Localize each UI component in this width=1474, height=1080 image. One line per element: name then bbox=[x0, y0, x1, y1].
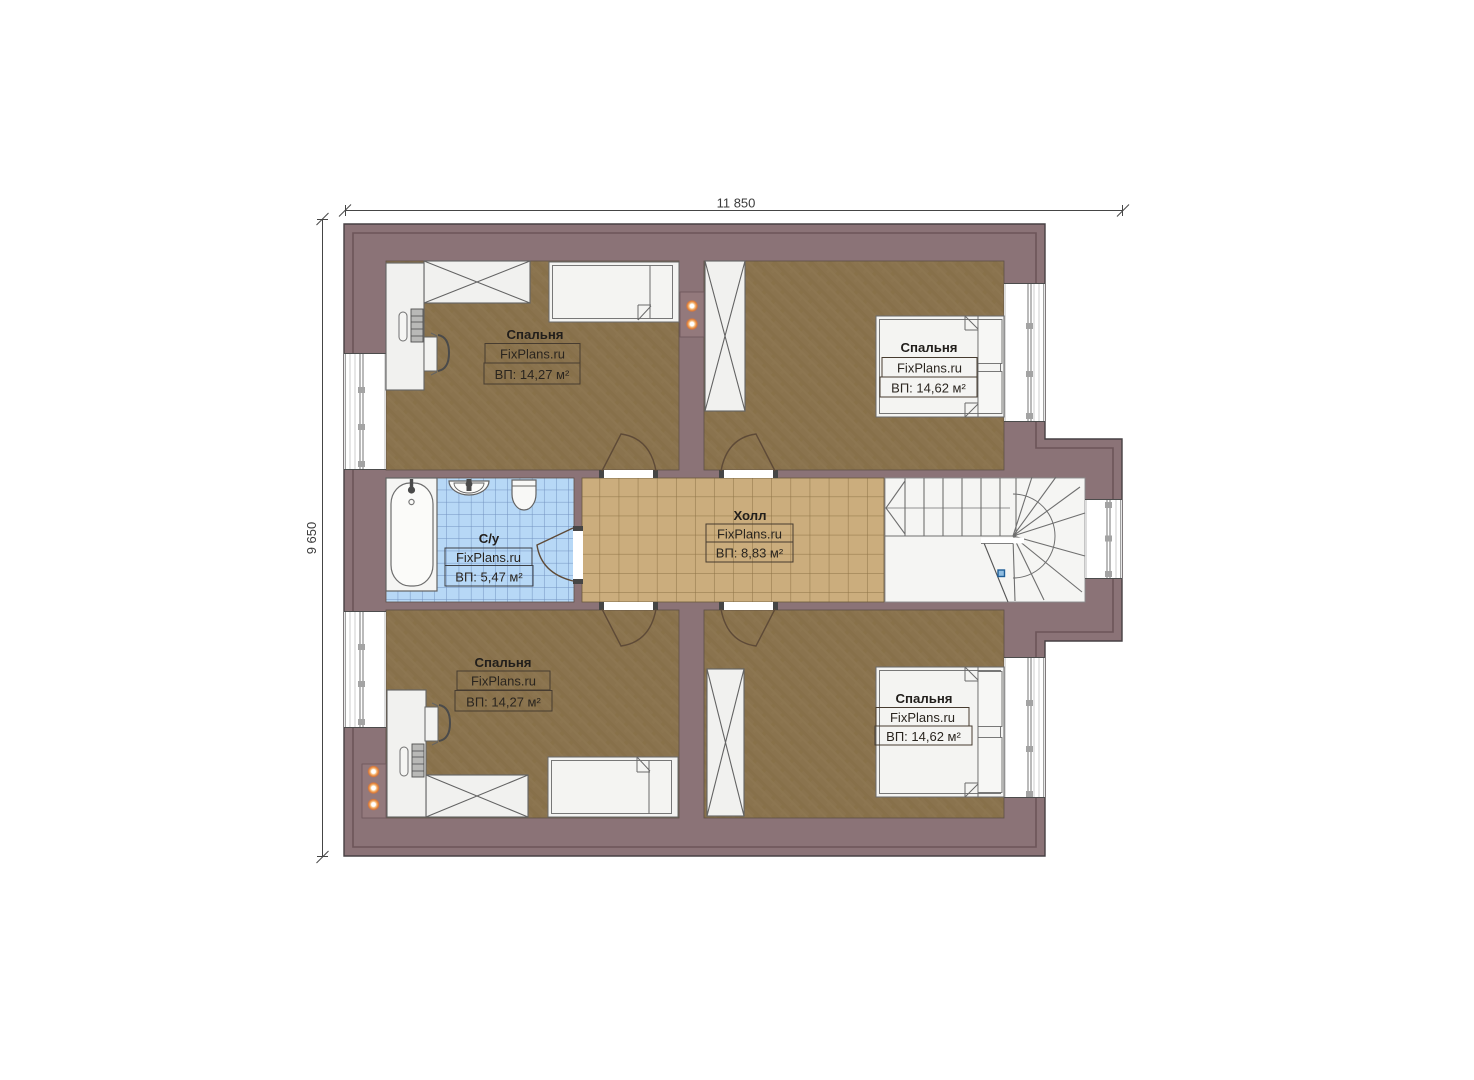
svg-text:Спальня: Спальня bbox=[901, 340, 958, 355]
svg-text:Спальня: Спальня bbox=[896, 691, 953, 706]
svg-text:FixPlans.ru: FixPlans.ru bbox=[456, 550, 521, 565]
svg-text:ВП: 14,62 м²: ВП: 14,62 м² bbox=[891, 381, 966, 396]
svg-text:Холл: Холл bbox=[733, 508, 766, 523]
svg-text:ВП: 8,83 м²: ВП: 8,83 м² bbox=[716, 546, 784, 561]
svg-text:FixPlans.ru: FixPlans.ru bbox=[717, 527, 782, 542]
svg-text:Спальня: Спальня bbox=[475, 655, 532, 670]
svg-text:ВП: 14,27 м²: ВП: 14,27 м² bbox=[466, 695, 541, 710]
svg-text:ВП: 14,62 м²: ВП: 14,62 м² bbox=[886, 729, 961, 744]
svg-text:FixPlans.ru: FixPlans.ru bbox=[897, 361, 962, 376]
svg-text:FixPlans.ru: FixPlans.ru bbox=[500, 347, 565, 362]
svg-text:FixPlans.ru: FixPlans.ru bbox=[471, 674, 536, 689]
svg-text:С/у: С/у bbox=[479, 531, 500, 546]
svg-text:Спальня: Спальня bbox=[507, 327, 564, 342]
svg-text:11 850: 11 850 bbox=[717, 196, 756, 211]
svg-text:9 650: 9 650 bbox=[304, 522, 319, 555]
svg-text:ВП: 14,27 м²: ВП: 14,27 м² bbox=[495, 367, 570, 382]
svg-text:ВП: 5,47 м²: ВП: 5,47 м² bbox=[455, 570, 523, 585]
svg-text:FixPlans.ru: FixPlans.ru bbox=[890, 710, 955, 725]
